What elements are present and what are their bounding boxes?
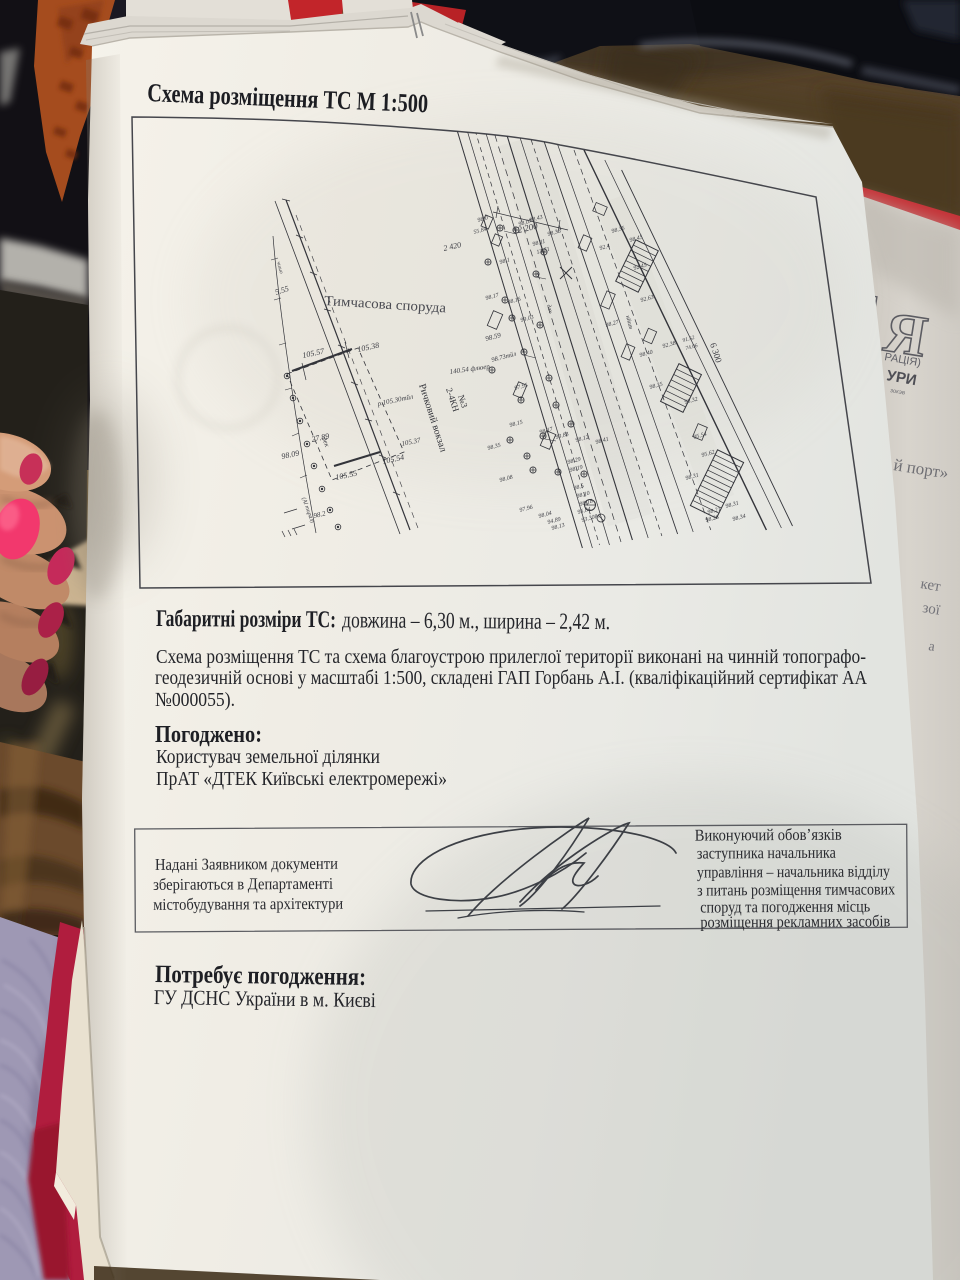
svg-text:розміщення рекламних засобів: розміщення рекламних засобів xyxy=(700,911,890,931)
svg-text:управління – начальника відділ: управління – начальника відділу xyxy=(697,861,891,881)
svg-text:Користувач земельної ділянки: Користувач земельної ділянки xyxy=(156,746,380,768)
svg-text:Габаритні розміри ТС:: Габаритні розміри ТС: xyxy=(156,606,336,633)
svg-text:зої: зої xyxy=(921,600,942,619)
svg-text:ПрАТ «ДТЕК Київські електромер: ПрАТ «ДТЕК Київські електромережі» xyxy=(156,768,447,790)
svg-text:геодезичній основі у масштабі: геодезичній основі у масштабі 1:500, скл… xyxy=(155,667,867,689)
svg-text:заступника начальника: заступника начальника xyxy=(697,843,837,863)
svg-text:ГУ ДСНС України в м. Києві: ГУ ДСНС України в м. Києві xyxy=(154,985,376,1012)
svg-text:довжина – 6,30 м., ширина – 2,: довжина – 6,30 м., ширина – 2,42 м. xyxy=(342,607,610,634)
svg-text:№000055).: №000055). xyxy=(155,689,235,711)
svg-text:зберігаються в Департаменті: зберігаються в Департаменті xyxy=(153,874,333,894)
svg-text:Погоджено:: Погоджено: xyxy=(155,722,262,748)
svg-text:містобудування та архітектури: містобудування та архітектури xyxy=(153,894,343,914)
svg-text:Надані Заявником документи: Надані Заявником документи xyxy=(155,854,338,874)
svg-text:кет: кет xyxy=(919,576,942,595)
svg-text:Виконуючий обов’язків: Виконуючий обов’язків xyxy=(695,825,842,845)
svg-text:Схема розміщення ТС та схема б: Схема розміщення ТС та схема благоустрою… xyxy=(156,646,866,668)
